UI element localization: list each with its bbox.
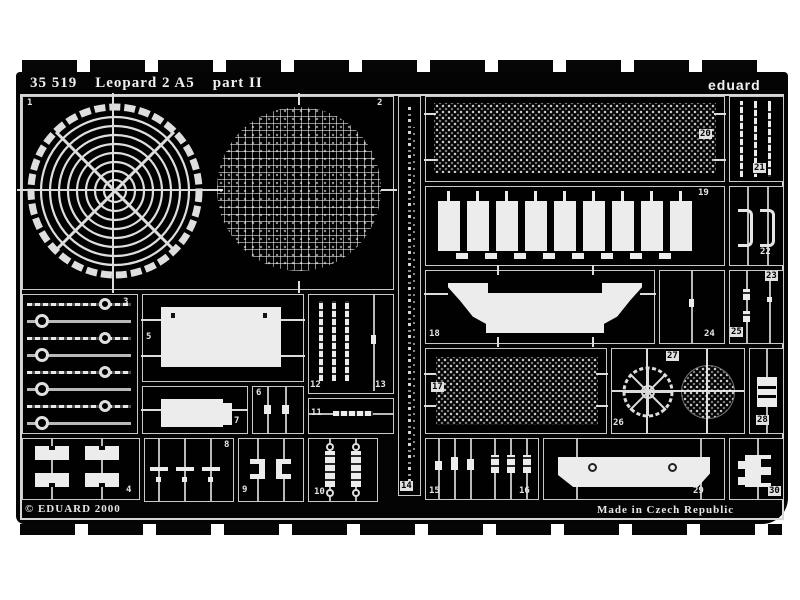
sprue-tab bbox=[141, 409, 161, 411]
slat bbox=[670, 201, 692, 251]
fret-cell-part-3 bbox=[22, 294, 138, 434]
segmented-strip bbox=[345, 301, 349, 381]
part-label-27: 27 bbox=[666, 351, 679, 361]
bracket-notch bbox=[761, 475, 771, 483]
sleeve bbox=[491, 455, 499, 473]
etched-text-strip bbox=[408, 107, 411, 482]
sprue-tab bbox=[424, 405, 436, 407]
fret-cell-part-24 bbox=[659, 270, 725, 344]
washer bbox=[35, 382, 49, 396]
bracket-part-7 bbox=[161, 399, 223, 427]
part-label-9: 9 bbox=[242, 485, 247, 495]
photo-top-edge-perforation bbox=[22, 60, 764, 72]
register-tick bbox=[497, 337, 499, 347]
part-label-29: 29 bbox=[693, 486, 704, 496]
bead bbox=[467, 459, 474, 470]
slat-stub bbox=[543, 253, 555, 259]
set-name: Leopard 2 A5 bbox=[95, 75, 195, 91]
plug-notch bbox=[99, 483, 105, 487]
c-bracket-opening bbox=[250, 464, 259, 474]
slat-stub bbox=[514, 253, 526, 259]
fret-cell-part-19 bbox=[425, 186, 725, 266]
fret-cell-part-8 bbox=[144, 438, 234, 502]
post-end bbox=[352, 443, 360, 451]
part-label-26: 26 bbox=[613, 418, 624, 428]
bracket-nub bbox=[738, 461, 745, 469]
slat-stub bbox=[485, 253, 497, 259]
plate-part-29 bbox=[558, 457, 710, 487]
segmented-section bbox=[333, 411, 373, 416]
cross-bar bbox=[202, 467, 220, 471]
washer bbox=[35, 416, 49, 430]
plug-notch bbox=[99, 446, 105, 450]
bead bbox=[264, 405, 271, 414]
fret-cell-part-18 bbox=[425, 270, 655, 344]
part-label-22: 22 bbox=[760, 247, 771, 257]
post-end bbox=[352, 489, 360, 497]
rod bbox=[27, 371, 131, 374]
fret-cell-parts-1-2 bbox=[22, 96, 394, 290]
cross-bar bbox=[176, 467, 194, 471]
fret-title: 35 519Leopard 2 A5part II bbox=[30, 75, 263, 92]
register-tick bbox=[592, 337, 594, 347]
part-label-25: 25 bbox=[730, 327, 743, 337]
register-tick bbox=[592, 265, 594, 275]
fret-cell-part-22 bbox=[729, 186, 784, 266]
slat-tab bbox=[621, 191, 624, 201]
part-label-2: 2 bbox=[377, 98, 382, 108]
hole-mark bbox=[668, 463, 677, 472]
part-label-20: 20 bbox=[699, 129, 712, 139]
fret-cell-part-4 bbox=[22, 438, 140, 500]
segmented-post bbox=[325, 451, 335, 487]
ladder-block bbox=[757, 377, 777, 407]
bead bbox=[689, 299, 694, 307]
dashed-strip bbox=[740, 101, 743, 177]
part-label-21: 21 bbox=[753, 163, 766, 173]
register-tick bbox=[298, 281, 300, 293]
etched-text-strip bbox=[413, 127, 415, 457]
product-photo-page: 35 519Leopard 2 A5part II eduard bbox=[0, 0, 800, 600]
washer bbox=[99, 400, 111, 412]
fret-cell-part-20 bbox=[425, 96, 725, 182]
slat-stub bbox=[659, 253, 671, 259]
set-number: 35 519 bbox=[30, 75, 77, 91]
sprue-tab bbox=[596, 405, 608, 407]
sprue-tab bbox=[141, 319, 161, 321]
part-label-16: 16 bbox=[519, 486, 530, 496]
part-label-4: 4 bbox=[126, 485, 131, 495]
part-label-18: 18 bbox=[429, 329, 440, 339]
photo-bottom-edge-perforation bbox=[20, 524, 782, 535]
cross-bar bbox=[150, 467, 168, 471]
part-label-13: 13 bbox=[375, 380, 386, 390]
slat-stub bbox=[630, 253, 642, 259]
slat-tab bbox=[563, 191, 566, 201]
brand-logo: eduard bbox=[708, 77, 761, 93]
slat-stub bbox=[601, 253, 613, 259]
slat-tab bbox=[592, 191, 595, 201]
bead bbox=[451, 457, 458, 470]
made-in-text: Made in Czech Republic bbox=[597, 504, 734, 516]
part-label-15: 15 bbox=[429, 486, 440, 496]
hook-bracket bbox=[760, 209, 775, 247]
crosshair-vertical bbox=[112, 93, 114, 293]
part-label-11: 11 bbox=[311, 408, 322, 418]
sprue-tab bbox=[596, 373, 608, 375]
sprue-tab bbox=[424, 159, 436, 161]
rod bbox=[691, 271, 693, 343]
slat bbox=[641, 201, 663, 251]
rod bbox=[746, 271, 748, 343]
part-label-10: 10 bbox=[314, 487, 325, 497]
thin-rod bbox=[769, 271, 771, 343]
sprue-tab bbox=[424, 113, 436, 115]
part-label-24: 24 bbox=[704, 329, 715, 339]
fret-cell-part-14 bbox=[398, 96, 421, 496]
fret-cell-part-17 bbox=[425, 348, 607, 434]
part-label-8: 8 bbox=[224, 440, 229, 450]
sleeve bbox=[523, 455, 531, 473]
part-label-23: 23 bbox=[765, 271, 778, 281]
slat-tab bbox=[476, 191, 479, 201]
part-label-5: 5 bbox=[146, 332, 151, 342]
slat bbox=[496, 201, 518, 251]
hole-mark bbox=[588, 463, 597, 472]
etched-mark bbox=[171, 313, 175, 318]
rod bbox=[27, 405, 131, 408]
slat-tab bbox=[679, 191, 682, 201]
slat bbox=[583, 201, 605, 251]
plug-notch bbox=[49, 483, 55, 487]
washer bbox=[99, 298, 111, 310]
fret-cell-part-5 bbox=[142, 294, 304, 382]
part-label-3: 3 bbox=[123, 297, 128, 307]
washer bbox=[35, 348, 49, 362]
dashed-strip bbox=[768, 101, 771, 177]
spoked-disc-part-26 bbox=[621, 365, 675, 419]
bracket-nub bbox=[738, 477, 745, 485]
mesh-screen-part-20 bbox=[434, 103, 716, 173]
hook-bracket bbox=[738, 209, 753, 247]
segmented-strip bbox=[319, 301, 323, 381]
mesh-panel-part-17 bbox=[436, 357, 598, 425]
post-end bbox=[326, 489, 334, 497]
slat-tab bbox=[505, 191, 508, 201]
bead bbox=[371, 335, 376, 344]
crosshair-horizontal bbox=[17, 189, 223, 191]
washer bbox=[99, 332, 111, 344]
sprue-tab bbox=[281, 355, 305, 357]
pin-stub bbox=[156, 477, 161, 482]
left-wing bbox=[448, 283, 488, 325]
collar bbox=[743, 289, 750, 300]
bracket-flange bbox=[223, 403, 232, 425]
washer bbox=[35, 314, 49, 328]
sprue-tab bbox=[424, 293, 448, 295]
post-end bbox=[326, 443, 334, 451]
bead bbox=[767, 297, 772, 302]
slat bbox=[467, 201, 489, 251]
c-bracket-opening bbox=[282, 464, 291, 474]
part-label-28: 28 bbox=[756, 415, 769, 425]
part-label-1: 1 bbox=[27, 98, 32, 108]
sheet-label: part II bbox=[213, 75, 263, 91]
bracket-notch bbox=[761, 459, 771, 467]
slat bbox=[612, 201, 634, 251]
washer bbox=[99, 366, 111, 378]
rod bbox=[27, 303, 131, 306]
sprue-tab bbox=[714, 159, 726, 161]
slat bbox=[554, 201, 576, 251]
bead bbox=[282, 405, 289, 414]
slat-tab bbox=[447, 191, 450, 201]
sprue-tab bbox=[141, 355, 161, 357]
sprue-tab bbox=[424, 373, 436, 375]
segmented-strip bbox=[332, 301, 336, 381]
part-label-17: 17 bbox=[431, 382, 444, 392]
mesh-disc-part-27 bbox=[682, 366, 734, 418]
register-tick bbox=[381, 189, 397, 191]
part-label-12: 12 bbox=[310, 380, 321, 390]
sprue-tab bbox=[281, 319, 305, 321]
sleeve bbox=[507, 455, 515, 473]
fret-cell-parts-12-13 bbox=[308, 294, 394, 394]
slat-stub bbox=[572, 253, 584, 259]
register-tick bbox=[298, 93, 300, 105]
ladder-slit bbox=[758, 386, 776, 389]
fret-cell-part-7 bbox=[142, 386, 248, 434]
woven-grille-part-2 bbox=[217, 107, 381, 271]
segmented-post bbox=[351, 451, 361, 487]
slat-tab bbox=[534, 191, 537, 201]
part-label-19: 19 bbox=[698, 188, 709, 198]
sprue-tab bbox=[232, 409, 248, 411]
pin-stub bbox=[182, 477, 187, 482]
rod bbox=[27, 337, 131, 340]
part-label-14: 14 bbox=[400, 481, 413, 491]
plate-part-18 bbox=[486, 293, 604, 333]
slat-stub bbox=[456, 253, 468, 259]
etched-mark bbox=[263, 313, 267, 318]
sprue-tab bbox=[714, 113, 726, 115]
slat bbox=[525, 201, 547, 251]
ladder-slit bbox=[758, 395, 776, 398]
bead bbox=[435, 461, 442, 470]
fret-cell-part-9 bbox=[238, 438, 304, 502]
pin-stub bbox=[208, 477, 213, 482]
slat bbox=[438, 201, 460, 251]
copyright-text: © EDUARD 2000 bbox=[25, 503, 121, 515]
plug-notch bbox=[49, 446, 55, 450]
sprue-tab bbox=[640, 293, 656, 295]
part-label-7: 7 bbox=[234, 416, 239, 426]
fan-grille-part-1 bbox=[27, 103, 203, 279]
part-label-30: 30 bbox=[768, 486, 781, 496]
slat-tab bbox=[650, 191, 653, 201]
register-tick bbox=[497, 265, 499, 275]
part-label-6: 6 bbox=[256, 388, 261, 398]
right-wing bbox=[602, 283, 642, 325]
collar bbox=[743, 311, 750, 322]
